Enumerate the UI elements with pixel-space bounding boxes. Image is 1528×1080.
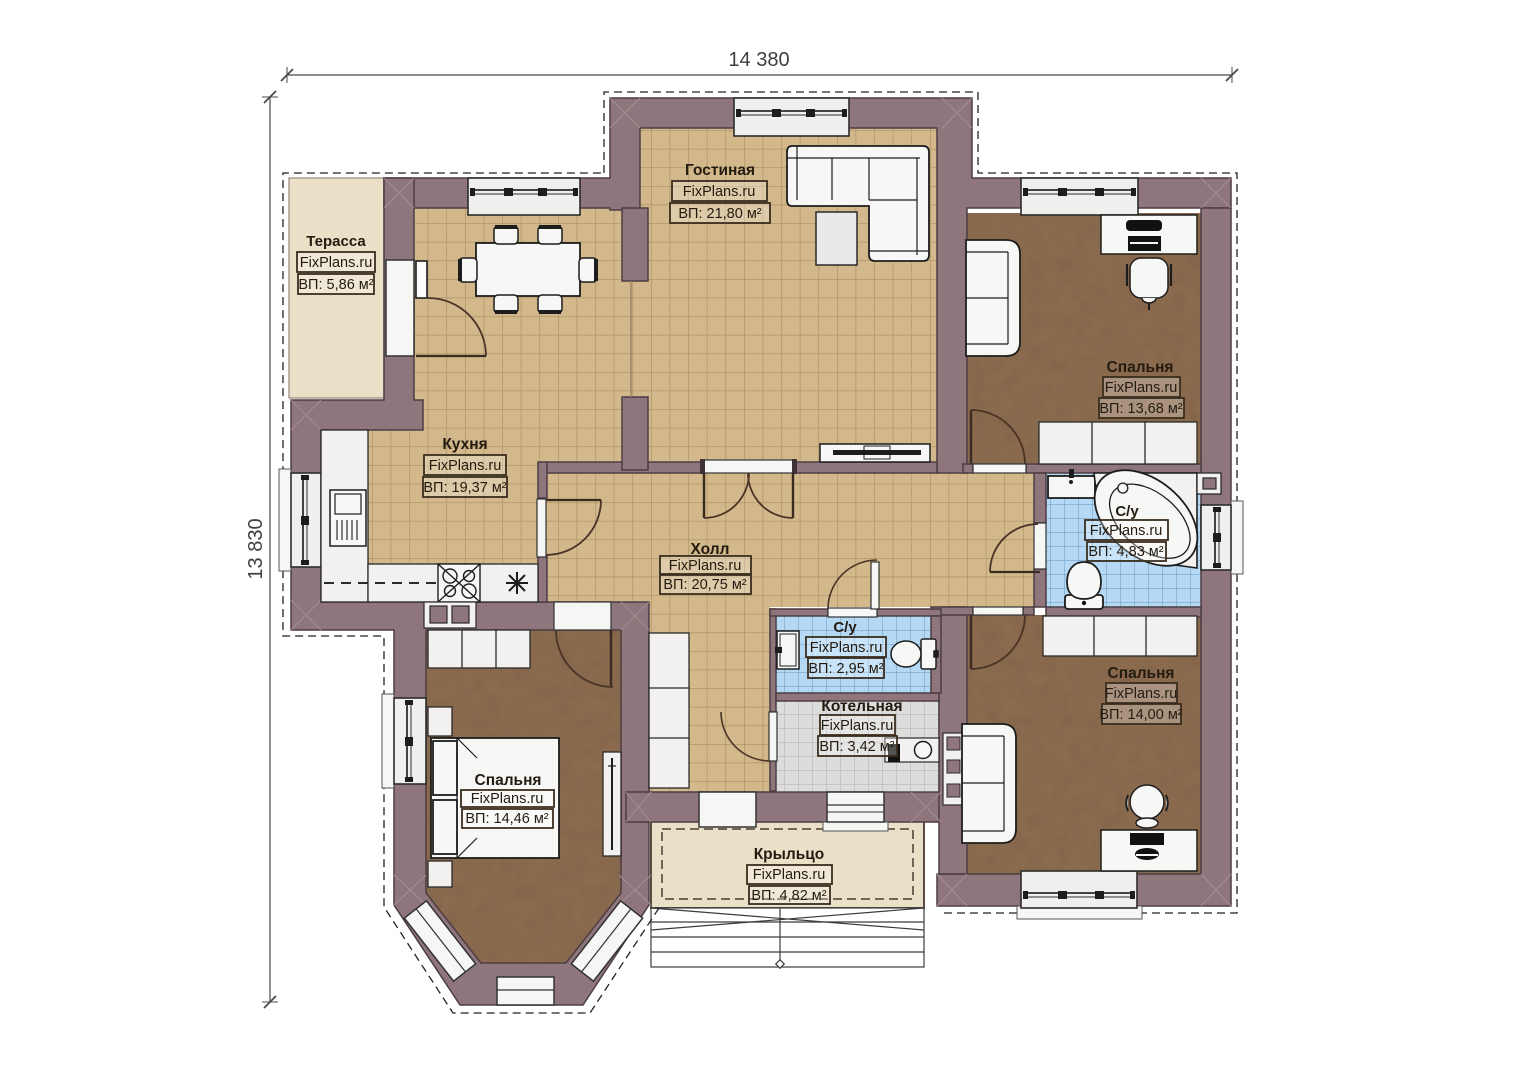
svg-text:FixPlans.ru: FixPlans.ru — [300, 255, 373, 271]
svg-text:ВП: 4,83 м²: ВП: 4,83 м² — [1088, 544, 1163, 560]
svg-text:14 380: 14 380 — [728, 49, 789, 71]
svg-text:ВП: 2,95 м²: ВП: 2,95 м² — [808, 661, 883, 677]
svg-text:Спальня: Спальня — [475, 772, 542, 789]
svg-text:FixPlans.ru: FixPlans.ru — [1105, 686, 1178, 702]
svg-text:FixPlans.ru: FixPlans.ru — [1090, 523, 1163, 539]
svg-text:С/у: С/у — [1115, 503, 1139, 520]
svg-text:Терасса: Терасса — [306, 233, 366, 250]
svg-text:FixPlans.ru: FixPlans.ru — [753, 867, 826, 883]
svg-text:FixPlans.ru: FixPlans.ru — [429, 458, 502, 474]
svg-text:FixPlans.ru: FixPlans.ru — [669, 558, 742, 574]
svg-text:FixPlans.ru: FixPlans.ru — [1105, 380, 1178, 396]
svg-text:Крыльцо: Крыльцо — [754, 846, 825, 863]
svg-text:ВП: 14,00 м²: ВП: 14,00 м² — [1099, 707, 1182, 723]
svg-text:ВП: 5,86 м²: ВП: 5,86 м² — [298, 277, 373, 293]
svg-text:FixPlans.ru: FixPlans.ru — [821, 718, 894, 734]
svg-text:ВП: 3,42 м²: ВП: 3,42 м² — [819, 739, 894, 755]
svg-text:ВП: 13,68 м²: ВП: 13,68 м² — [1099, 401, 1182, 417]
svg-text:Кухня: Кухня — [442, 436, 487, 453]
svg-text:FixPlans.ru: FixPlans.ru — [810, 640, 883, 656]
svg-text:Спальня: Спальня — [1107, 359, 1174, 376]
svg-text:Спальня: Спальня — [1108, 665, 1175, 682]
svg-text:С/у: С/у — [833, 619, 857, 636]
svg-text:ВП: 21,80 м²: ВП: 21,80 м² — [678, 206, 761, 222]
svg-text:Котельная: Котельная — [821, 698, 902, 715]
svg-text:ВП: 14,46 м²: ВП: 14,46 м² — [465, 811, 548, 827]
svg-text:FixPlans.ru: FixPlans.ru — [683, 184, 756, 200]
svg-text:FixPlans.ru: FixPlans.ru — [471, 791, 544, 807]
svg-text:13 830: 13 830 — [245, 518, 267, 579]
svg-text:ВП: 4,82 м²: ВП: 4,82 м² — [751, 888, 826, 904]
svg-text:ВП: 19,37 м²: ВП: 19,37 м² — [423, 480, 506, 496]
svg-text:Гостиная: Гостиная — [685, 162, 755, 179]
svg-text:ВП: 20,75 м²: ВП: 20,75 м² — [663, 577, 746, 593]
